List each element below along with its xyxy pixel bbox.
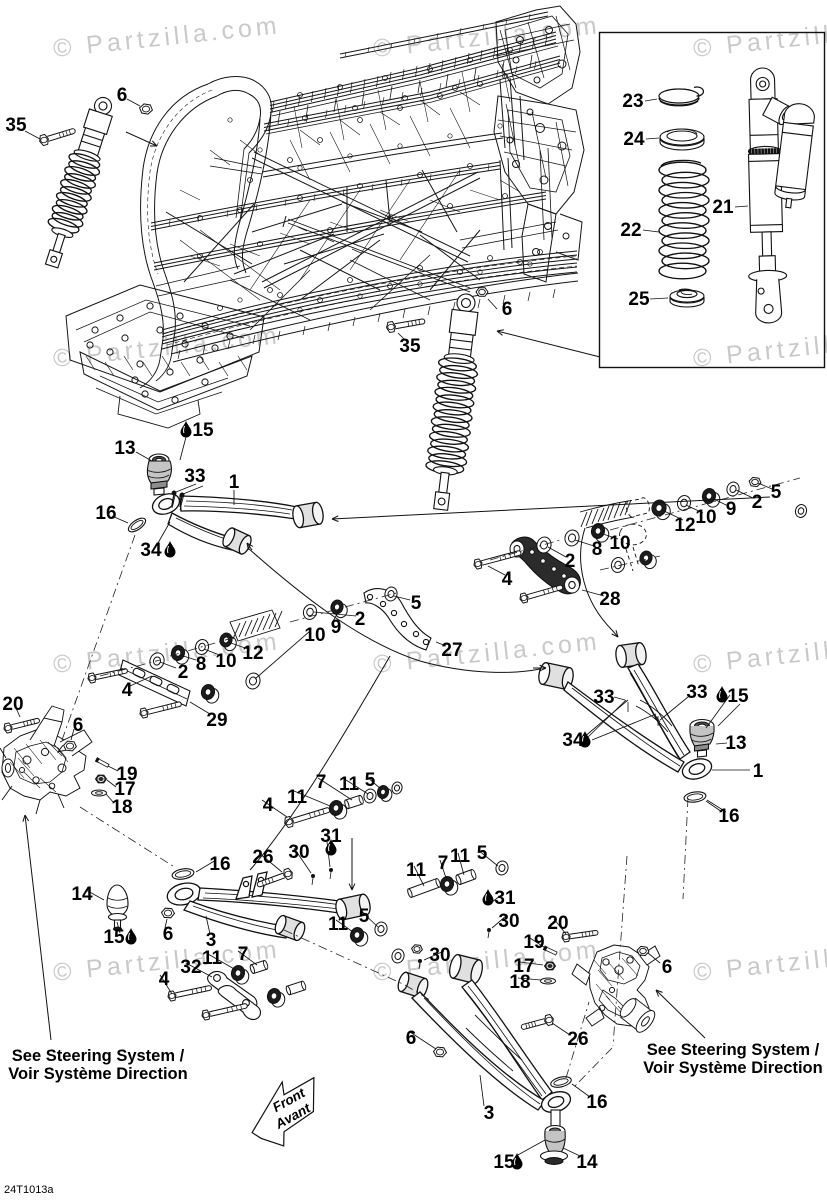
svg-text:6: 6: [117, 85, 128, 106]
svg-text:33: 33: [686, 682, 707, 703]
svg-text:11: 11: [450, 846, 471, 867]
svg-text:6: 6: [502, 299, 513, 320]
svg-text:35: 35: [399, 336, 421, 357]
svg-text:10: 10: [609, 533, 630, 554]
svg-text:15: 15: [493, 1152, 515, 1173]
svg-text:19: 19: [523, 932, 544, 953]
svg-text:7: 7: [238, 944, 249, 965]
svg-text:15: 15: [103, 927, 125, 948]
svg-text:11: 11: [328, 914, 349, 935]
svg-text:2: 2: [752, 492, 763, 513]
svg-text:7: 7: [316, 772, 327, 793]
svg-text:9: 9: [331, 617, 342, 638]
svg-text:22: 22: [620, 220, 641, 241]
svg-text:15: 15: [192, 420, 214, 441]
svg-text:16: 16: [95, 503, 116, 524]
svg-text:34: 34: [140, 540, 162, 561]
svg-text:26: 26: [567, 1029, 588, 1050]
svg-text:10: 10: [215, 651, 236, 672]
svg-text:6: 6: [163, 924, 174, 945]
svg-text:31: 31: [494, 888, 516, 909]
svg-text:1: 1: [229, 472, 240, 493]
svg-text:12: 12: [674, 515, 695, 536]
svg-text:4: 4: [159, 969, 170, 990]
svg-text:13: 13: [114, 438, 135, 459]
svg-text:32: 32: [180, 957, 201, 978]
svg-text:Voir Système Direction: Voir Système Direction: [8, 1065, 187, 1083]
svg-text:5: 5: [771, 482, 782, 503]
svg-text:4: 4: [502, 569, 513, 590]
svg-text:30: 30: [429, 945, 450, 966]
svg-text:5: 5: [365, 770, 376, 791]
svg-text:6: 6: [406, 1028, 417, 1049]
svg-text:33: 33: [593, 687, 614, 708]
svg-text:27: 27: [441, 640, 462, 661]
svg-text:12: 12: [242, 643, 263, 664]
svg-text:20: 20: [547, 913, 568, 934]
svg-text:11: 11: [406, 860, 427, 881]
svg-text:18: 18: [509, 972, 530, 993]
svg-text:30: 30: [288, 842, 309, 863]
svg-text:7: 7: [438, 853, 449, 874]
svg-text:29: 29: [206, 710, 227, 731]
svg-text:15: 15: [727, 686, 749, 707]
svg-text:5: 5: [359, 906, 370, 927]
svg-text:20: 20: [2, 694, 23, 715]
svg-text:2: 2: [355, 609, 366, 630]
svg-text:1: 1: [753, 761, 764, 782]
svg-text:16: 16: [586, 1092, 607, 1113]
svg-text:24T1013a: 24T1013a: [4, 1184, 54, 1196]
svg-text:23: 23: [622, 91, 643, 112]
svg-text:6: 6: [662, 957, 673, 978]
svg-text:16: 16: [209, 854, 230, 875]
svg-text:11: 11: [339, 774, 360, 795]
svg-text:34: 34: [562, 730, 584, 751]
svg-text:11: 11: [202, 948, 223, 969]
svg-text:26: 26: [252, 847, 273, 868]
svg-text:10: 10: [304, 625, 325, 646]
svg-text:6: 6: [73, 715, 84, 736]
svg-text:3: 3: [484, 1103, 495, 1124]
svg-text:8: 8: [592, 539, 603, 560]
svg-text:4: 4: [122, 680, 133, 701]
svg-text:5: 5: [477, 843, 488, 864]
svg-text:2: 2: [178, 662, 189, 683]
svg-text:14: 14: [576, 1152, 598, 1173]
svg-text:4: 4: [263, 795, 274, 816]
svg-text:24: 24: [623, 129, 645, 150]
svg-text:5: 5: [411, 593, 422, 614]
svg-text:21: 21: [712, 197, 734, 218]
svg-text:11: 11: [287, 787, 308, 808]
svg-text:16: 16: [718, 806, 739, 827]
svg-text:9: 9: [726, 499, 737, 520]
svg-text:10: 10: [695, 507, 716, 528]
svg-text:2: 2: [565, 551, 576, 572]
svg-text:13: 13: [725, 733, 746, 754]
svg-text:30: 30: [498, 911, 519, 932]
svg-text:33: 33: [184, 466, 205, 487]
svg-text:Voir Système Direction: Voir Système Direction: [643, 1059, 822, 1077]
svg-text:14: 14: [71, 884, 93, 905]
svg-text:28: 28: [599, 589, 620, 610]
svg-text:25: 25: [628, 289, 650, 310]
svg-text:8: 8: [196, 654, 207, 675]
svg-text:31: 31: [320, 826, 342, 847]
svg-text:18: 18: [111, 797, 132, 818]
svg-text:See Steering System /: See Steering System /: [12, 1047, 185, 1065]
svg-text:35: 35: [5, 115, 27, 136]
svg-text:See Steering System /: See Steering System /: [647, 1041, 820, 1059]
